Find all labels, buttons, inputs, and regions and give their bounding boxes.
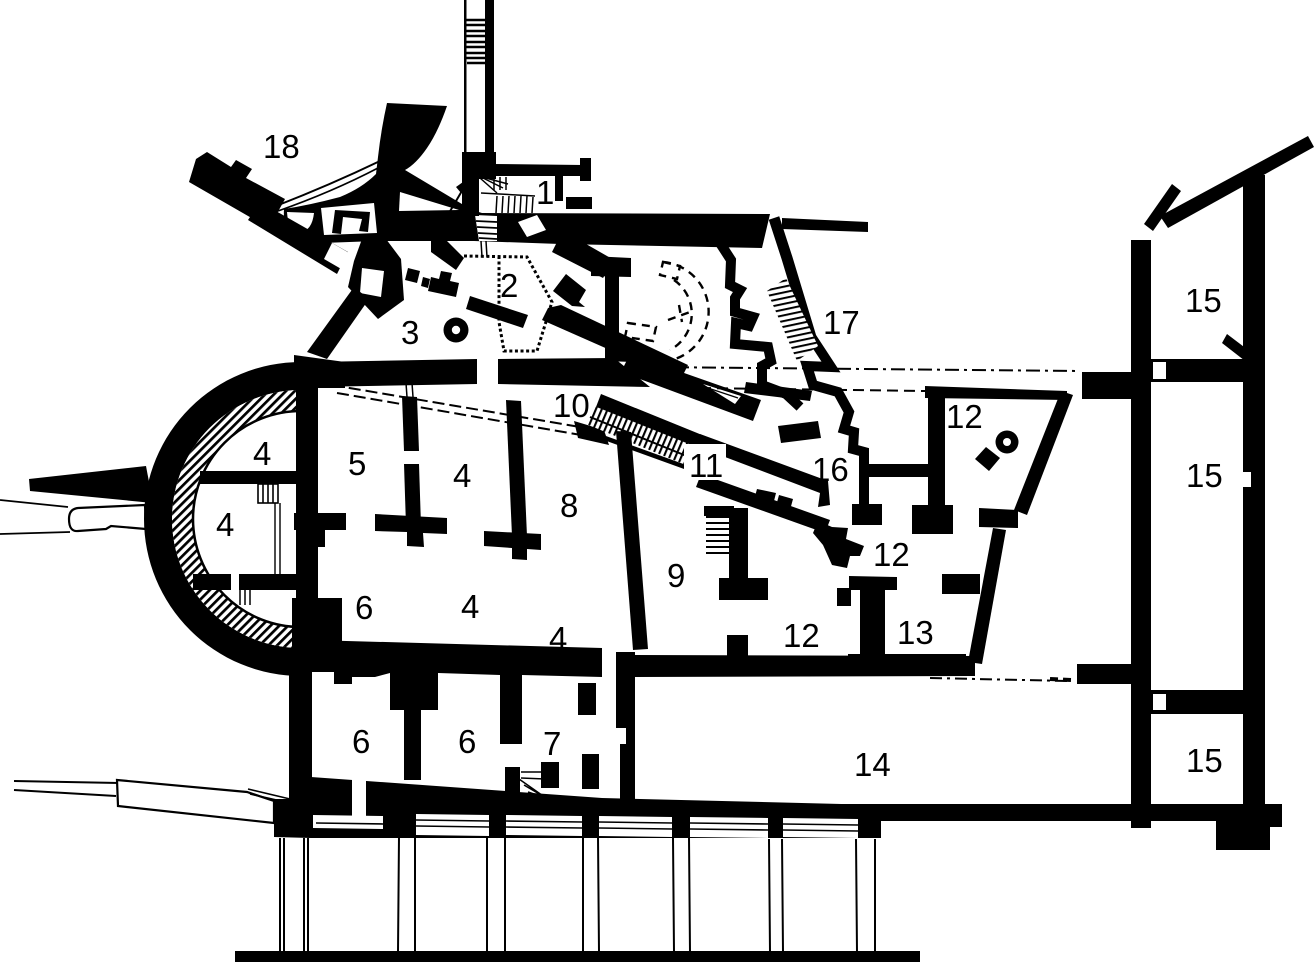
svg-text:12: 12 [873,536,910,573]
svg-text:11: 11 [689,447,723,484]
svg-text:10: 10 [553,387,590,424]
svg-text:13: 13 [897,614,934,651]
svg-text:4: 4 [461,588,479,625]
svg-text:18: 18 [263,128,300,165]
svg-text:4: 4 [216,506,234,543]
svg-text:4: 4 [253,435,271,472]
svg-text:6: 6 [355,589,373,626]
svg-text:2: 2 [500,267,518,304]
svg-text:6: 6 [458,723,476,760]
svg-text:9: 9 [667,557,685,594]
svg-text:15: 15 [1186,742,1223,779]
svg-text:12: 12 [783,617,820,654]
svg-text:12: 12 [946,398,983,435]
svg-text:3: 3 [401,314,419,351]
svg-text:17: 17 [823,304,860,341]
svg-text:1: 1 [536,174,554,211]
svg-text:8: 8 [560,487,578,524]
svg-text:7: 7 [543,725,561,762]
svg-text:15: 15 [1185,282,1222,319]
svg-text:15: 15 [1186,457,1223,494]
svg-text:6: 6 [352,723,370,760]
svg-text:5: 5 [348,445,366,482]
svg-text:16: 16 [812,451,849,488]
svg-text:14: 14 [854,746,891,783]
svg-text:4: 4 [453,457,471,494]
